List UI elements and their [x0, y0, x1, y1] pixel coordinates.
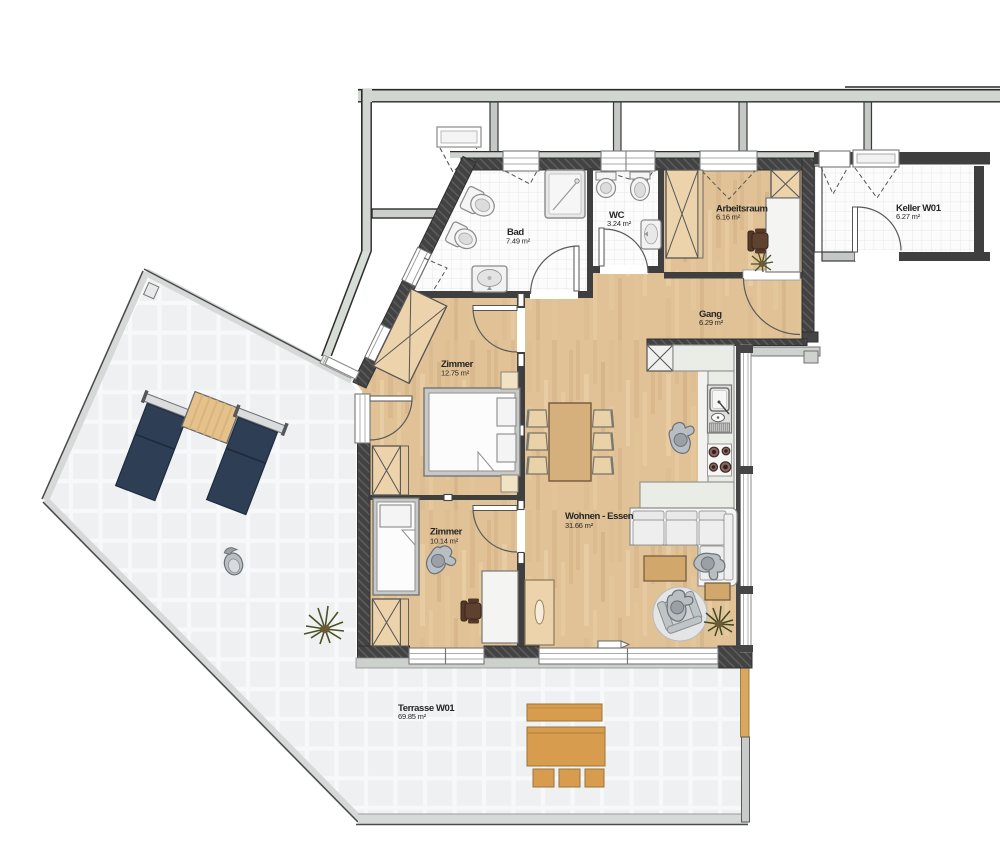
- svg-text:6.27 m²: 6.27 m²: [896, 212, 921, 221]
- svg-text:7.49 m²: 7.49 m²: [506, 237, 531, 246]
- svg-text:10.14 m²: 10.14 m²: [430, 537, 459, 546]
- svg-text:6.29 m²: 6.29 m²: [699, 318, 724, 327]
- svg-text:69.85 m²: 69.85 m²: [398, 712, 427, 721]
- svg-text:3.24 m²: 3.24 m²: [607, 219, 632, 228]
- svg-text:6.16 m²: 6.16 m²: [716, 213, 741, 222]
- svg-text:31.66 m²: 31.66 m²: [565, 521, 594, 530]
- svg-text:12.75 m²: 12.75 m²: [441, 369, 470, 378]
